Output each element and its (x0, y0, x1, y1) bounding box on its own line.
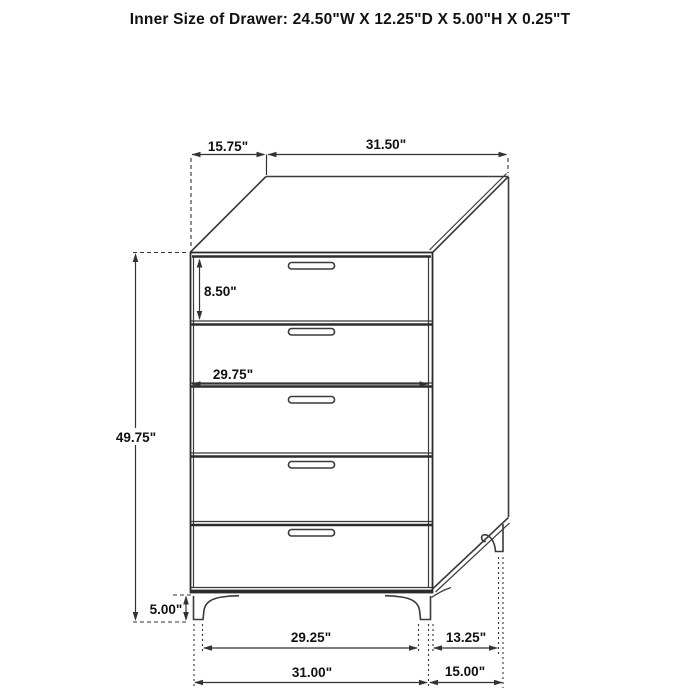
arrowhead-up (133, 253, 139, 262)
front-right-leg (385, 596, 431, 620)
arrowhead-right (419, 680, 428, 686)
arrowhead-right (489, 645, 498, 651)
arrowhead-down (183, 612, 189, 621)
arrowhead-left (203, 645, 212, 651)
arrowhead-left (192, 152, 201, 158)
top-right-slope-edge (433, 177, 509, 253)
side-leg-span-label: 13.25" (446, 630, 486, 645)
side-bottom-slope-edge (433, 518, 509, 589)
drawer-height-label: 8.50" (204, 284, 237, 299)
arrowhead-right (409, 645, 418, 651)
front-leg-span-dimension: 29.25" (203, 630, 418, 651)
front-left-leg (194, 596, 240, 620)
overall-depth-dimension: 15.00" (429, 664, 503, 685)
overall-width-dimension: 31.00" (194, 665, 428, 685)
front-right-leg-side-bracket (432, 588, 452, 598)
body-height-label: 49.75" (116, 430, 156, 445)
arrowhead-left (433, 645, 442, 651)
overall-depth-label: 15.00" (445, 664, 485, 679)
arrowhead-left (429, 680, 438, 686)
back-right-leg (482, 524, 503, 552)
side-leg-span-dimension: 13.25" (433, 630, 498, 651)
arrowhead-up (183, 596, 189, 605)
chest-drawing (191, 174, 510, 620)
arrowhead-right (499, 152, 508, 158)
chest-dimension-diagram: 15.75" 31.50" (0, 0, 700, 700)
overall-width-label: 31.00" (292, 665, 332, 680)
body-height-dimension: 49.75" (110, 253, 188, 623)
front-face (191, 253, 433, 593)
top-width-label: 31.50" (366, 137, 406, 152)
top-right-slope-inner (430, 174, 507, 251)
arrowhead-left (194, 680, 203, 686)
front-leg-span-label: 29.25" (291, 630, 331, 645)
drawer-width-label: 29.75" (213, 367, 253, 382)
arrowhead-down (133, 612, 139, 621)
leg-height-dimension: 5.00" (150, 595, 191, 621)
top-width-dimension: 31.50" (268, 137, 509, 173)
arrowhead-right (257, 152, 266, 158)
leg-height-label: 5.00" (150, 602, 183, 617)
top-depth-dimension: 15.75" (191, 139, 267, 247)
arrowhead-left (268, 152, 277, 158)
top-left-slope-edge (191, 177, 267, 253)
arrowhead-right (494, 680, 503, 686)
top-depth-label: 15.75" (208, 139, 248, 154)
